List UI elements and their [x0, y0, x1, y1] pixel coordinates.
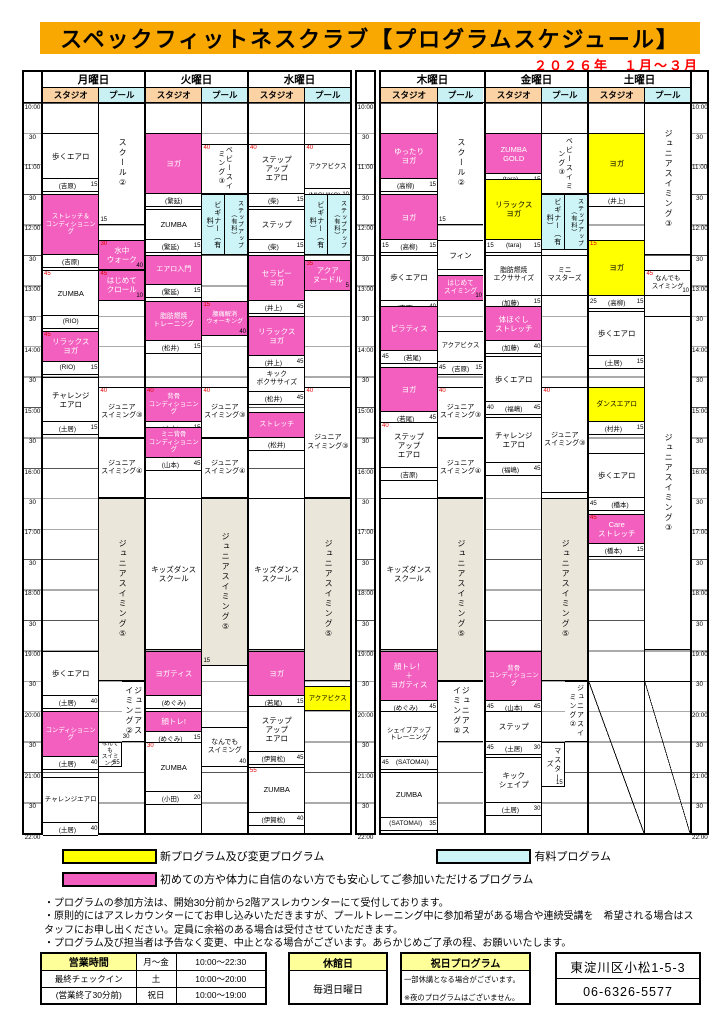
instructor-name: (吉原)	[446, 363, 476, 373]
schedule-event: キッズダンス スクール	[146, 498, 201, 650]
legend-row-1: 新プログラム及び変更プログラム 有料プログラム	[62, 848, 611, 864]
hours-time-cell: 10:00～19:00	[176, 987, 266, 1004]
event-title: ジュニアスイミング⑤	[456, 539, 465, 640]
event-main: ジュニアスイミング②	[565, 682, 587, 741]
schedule-event	[645, 681, 690, 833]
time-label: 15:00	[24, 407, 41, 415]
time-label: 30	[357, 559, 374, 567]
event-main: ZUMBA	[146, 210, 201, 238]
event-capacity: 15	[475, 365, 482, 371]
event-title: ジュニア スイミング③	[307, 434, 348, 451]
event-title: ジュニアスイミング③	[663, 129, 672, 230]
event-title: はじめて スイミング	[444, 280, 477, 296]
schedule-event: チャレンジエアロ(土居)40	[43, 777, 98, 836]
instructor-name: (吉原)	[44, 180, 91, 190]
event-title: コンディショニング	[43, 727, 98, 742]
schedule-event: 顔トレ!(めぐみ)15	[146, 711, 201, 744]
event-title: Care ストレッチ	[598, 520, 636, 538]
time-label: 14:00	[357, 346, 374, 354]
event-main: ヨガ	[249, 652, 304, 696]
schedule-event: ジュニアスイミング③	[645, 103, 690, 255]
event-title: ヨガティス	[155, 669, 192, 678]
event-capacity: 15	[91, 365, 98, 371]
time-label: 30	[24, 742, 41, 750]
instructor-name: (伊賀松)	[250, 814, 297, 824]
event-title: 歩くエアロ	[495, 375, 533, 384]
schedule-event: ヨガ(繁延)	[146, 133, 201, 207]
time-label: 21:00	[24, 772, 41, 780]
event-main: アクアビクス	[305, 687, 350, 710]
schedule-event: ステップ アップ エアロ(伊賀松)45	[249, 706, 304, 765]
event-capacity: 45	[297, 755, 304, 761]
event-title: チャレンジ エアロ	[52, 391, 89, 409]
time-label: 30	[357, 377, 374, 385]
event-main: ミニ背骨 コンディショニング	[146, 428, 201, 456]
schedule-event: 歩くエアロ(土居)15	[589, 311, 644, 370]
event-title: ジュニアスイミング②	[568, 682, 583, 741]
event-instructor-row: (松井)15	[146, 340, 201, 353]
event-main: ジュニア スイミング④	[99, 439, 144, 498]
event-start-marker: 40	[203, 145, 210, 152]
event-main: ヨガ	[381, 195, 437, 239]
event-capacity: 45	[297, 359, 304, 365]
event-main: ゆったり ヨガ	[381, 134, 437, 178]
event-capacity: 40	[91, 760, 98, 766]
event-capacity: 45	[487, 704, 494, 710]
instructor-name: (加藤)	[487, 342, 534, 352]
event-main: ヨガ	[146, 134, 201, 193]
instructor-name: (tara)	[494, 242, 534, 249]
event-title: アクアビクス	[442, 342, 480, 350]
area-header-pool: プール	[305, 88, 350, 102]
day-column: 火曜日スタジオプールヨガ(繁延)ZUMBA(繁延)15エアロ入門(繁延)15脂肪…	[144, 72, 247, 833]
event-title: 脂肪燃焼 トレーニング	[153, 313, 194, 329]
schedule-event: ステップ45(土居)30	[486, 711, 541, 754]
event-title: ステップアップ（有料）	[229, 195, 242, 254]
event-title: ジュニアスイミング⑤	[117, 539, 126, 640]
schedule-event: ピラティス45(若尾)	[381, 306, 437, 365]
studio-lane: ヨガ(井上)ヨガ1525(高柳)15歩くエアロ(土居)15ダンスエアロ(村井)1…	[589, 103, 645, 833]
schedule-event: フィン	[438, 240, 483, 270]
event-title: ステップアップ（有料）	[332, 195, 345, 254]
event-start-marker: 40	[306, 145, 313, 152]
event-main: シェイプアップ トレーニング	[381, 712, 437, 756]
event-title: アクアビクス	[309, 695, 347, 703]
event-title: ジュニア スイミング④	[204, 460, 245, 477]
event-title: はじめて クロール	[107, 276, 137, 294]
event-title: 歩くエアロ	[390, 273, 428, 282]
event-main: スクール②15	[99, 104, 144, 224]
event-title: キッズダンス スクール	[254, 565, 299, 583]
phone-number: 06-6326-5577	[557, 979, 699, 1005]
area-header-row: スタジオプール	[43, 88, 144, 103]
event-instructor-row: (繁延)15	[146, 284, 201, 297]
event-title: ジュニア スイミング③	[544, 432, 585, 449]
area-header-row: スタジオプール	[249, 88, 350, 103]
time-label: 11:00	[357, 164, 374, 172]
schedule-event: ジュニアスイミング⑤	[99, 498, 144, 681]
event-main: 腰痛解消 ウォーキング1540	[202, 302, 247, 335]
time-label: 30	[24, 620, 41, 628]
event-title: ジュニア スイミング④	[440, 460, 481, 477]
event-title: なんでも スイミング	[208, 739, 242, 755]
studio-lane: ゆったり ヨガ(高柳)15ヨガ15(高柳)15歩くエアロ(吉原)40ピラティス4…	[381, 103, 438, 833]
schedule-event: ジュニア スイミング③40	[438, 387, 483, 438]
schedule-event: ジュニアスイミング⑤15	[202, 498, 247, 665]
schedule-event: リラックス ヨガ(井上)45	[249, 316, 304, 370]
time-label: 19:00	[692, 651, 707, 659]
event-title: ベビースイミング③	[217, 145, 232, 194]
schedule-event: ジュニア スイミング③40	[305, 387, 350, 499]
event-main: ヨガティス	[146, 652, 201, 696]
time-label: 30	[692, 742, 707, 750]
event-instructor-row: 45(若尾)	[381, 350, 437, 363]
event-instructor-row: 25(高柳)15	[589, 295, 644, 308]
event-capacity: 45	[487, 745, 494, 751]
event-main: ZUMBA	[381, 773, 437, 817]
event-instructor-row: (山本)45	[146, 457, 201, 470]
event-start-marker: 55	[250, 768, 257, 775]
instructor-name: (高柳)	[382, 180, 429, 190]
time-label: 30	[692, 438, 707, 446]
instructor-name: (土居)	[44, 758, 91, 768]
time-label: 30	[692, 620, 707, 628]
event-corner-number: 40	[239, 329, 246, 336]
event-main: 背骨 コンディショニング	[486, 652, 541, 701]
instructor-name: (福嶋)	[494, 403, 534, 413]
event-capacity: 15	[297, 699, 304, 705]
instructor-name: (土居)	[494, 743, 534, 753]
event-capacity: 15	[297, 197, 304, 203]
event-main: ストレッチ	[249, 413, 304, 436]
event-instructor-row: (松井)	[249, 437, 304, 450]
event-start-marker: 45	[44, 271, 51, 278]
event-main: リラックス ヨガ45	[43, 332, 98, 360]
event-title: キック ボクササイズ	[256, 371, 297, 387]
instructor-name: (RIO)	[44, 364, 91, 371]
time-label: 30	[692, 498, 707, 506]
time-column: 10:003011:003012:003013:003014:003015:00…	[357, 72, 374, 833]
time-label: 30	[692, 316, 707, 324]
event-instructor-row: (めぐみ)	[146, 695, 201, 708]
event-title: エアロ入門	[156, 266, 191, 274]
area-header-studio: スタジオ	[589, 88, 645, 102]
event-main: ジュニアスイミング⑤	[305, 499, 350, 680]
event-title: リラックス ヨガ	[495, 200, 532, 218]
note-line: ・原則的にはアスレカウンターにてお申し込みいただきますが、プールトレーニング中に…	[44, 910, 700, 937]
time-label: 30	[357, 803, 374, 811]
event-main: ジュニア スイミング③40	[438, 388, 483, 437]
time-label: 30	[24, 194, 41, 202]
event-capacity: 20	[194, 795, 201, 801]
event-main: ベビースイミング③40	[202, 145, 247, 194]
area-header-pool: プール	[645, 88, 690, 102]
event-instructor-row: (伊賀松)45	[249, 751, 304, 764]
event-capacity: 40	[297, 816, 304, 822]
event-main: キック ボクササイズ	[249, 368, 304, 391]
schedule-event: 顔トレ！ ＋ ヨガティス(めぐみ)45	[381, 651, 437, 715]
event-title: アクアビクス	[309, 163, 347, 171]
instructor-name: (繁延)	[147, 195, 200, 205]
notes: ・プログラムの参加方法は、開始30分前から2階アスレカウンターにて受付しておりま…	[44, 897, 700, 950]
schedule-event: 背骨 コンディショニング45(山本)45	[486, 651, 541, 715]
event-capacity: 15	[382, 243, 389, 249]
day-column: 木曜日スタジオプールゆったり ヨガ(高柳)15ヨガ15(高柳)15歩くエアロ(吉…	[381, 72, 484, 833]
event-title: ミニ背骨 コンディショニング	[146, 431, 201, 454]
hours-day-cell: 月～金	[136, 953, 176, 970]
schedule-event: ビギナー（有料）	[305, 194, 327, 255]
event-instructor-row: (松井)45	[249, 391, 304, 404]
event-main: 顔トレ！ ＋ ヨガティス	[381, 652, 437, 701]
event-main: ジュニアスイミング⑤	[438, 499, 483, 680]
schedule-event: ビギナー（有料）	[542, 194, 564, 250]
event-capacity: 15	[429, 182, 436, 188]
schedule-event: 体ほぐし ストレッチ(加藤)40	[486, 306, 541, 354]
time-label: 30	[24, 255, 41, 263]
event-main: ダンスエアロ	[589, 388, 644, 421]
schedule-event: ジュニアスイミング②30	[122, 681, 144, 742]
event-instructor-row: (柴)15	[249, 193, 304, 206]
event-title: ビギナー（有料）	[308, 195, 323, 254]
time-label: 19:00	[357, 651, 374, 659]
schedule-event: アクアビクス45(吉原)15	[438, 331, 483, 374]
event-main: 顔トレ!	[146, 712, 201, 730]
schedule-event: ZUMBA(繁延)15	[146, 209, 201, 252]
studio-lane: ステップ アップ エアロ40(柴)15ステップ(柴)15セラピー ヨガ(井上)4…	[249, 103, 305, 833]
event-title: セラピー ヨガ	[262, 269, 292, 287]
event-start-marker: 45	[646, 271, 653, 278]
event-instructor-row: (福嶋)45	[486, 462, 541, 475]
event-title: ジュニアスイミング⑤	[560, 539, 569, 640]
event-instructor-row: (井上)	[589, 193, 644, 206]
day-column: 金曜日スタジオプールZUMBA GOLD(tara)15リラックス ヨガ15(t…	[484, 72, 587, 833]
day-body: ゆったり ヨガ(高柳)15ヨガ15(高柳)15歩くエアロ(吉原)40ピラティス4…	[381, 103, 484, 833]
event-instructor-row: (小田)20	[146, 791, 201, 804]
event-corner-number: 15	[100, 217, 107, 224]
instructor-name: (柴)	[250, 241, 297, 251]
time-label: 30	[357, 438, 374, 446]
area-header-studio: スタジオ	[249, 88, 305, 102]
event-main: アクア ヌードル355	[305, 261, 350, 289]
event-capacity: 45	[382, 760, 389, 766]
event-main: スクール②15	[438, 104, 483, 224]
event-main: ジュニアスイミング②	[438, 682, 483, 741]
event-main: 歩くエアロ	[43, 134, 98, 178]
event-start-marker: 35	[306, 261, 313, 268]
event-corner-number: 55	[113, 760, 120, 767]
hours-label-cell: 最終チェックイン	[41, 970, 136, 987]
schedule-event: 腰痛解消 ウォーキング1540	[202, 301, 247, 336]
event-main: キッズダンス スクール	[381, 499, 437, 649]
event-capacity: 15	[534, 299, 541, 305]
schedule-event: ジュニア スイミング④	[438, 438, 483, 499]
schedule-event: ヨガ1525(高柳)15	[589, 240, 644, 309]
instructor-name: (小田)	[147, 793, 194, 803]
legend-swatch-new-program	[62, 849, 157, 864]
event-capacity: 30	[534, 806, 541, 812]
time-label: 10:00	[692, 103, 707, 111]
event-main: フィン	[438, 241, 483, 269]
event-main: ジュニア スイミング④	[438, 439, 483, 498]
event-capacity: 25	[590, 299, 597, 305]
time-label: 13:00	[24, 286, 41, 294]
event-main: なんでも スイミング4510	[645, 271, 690, 294]
day-column: 月曜日スタジオプール歩くエアロ(吉原)15ストレッチ＆ コンディショニング(吉原…	[41, 72, 144, 833]
time-column-spacer	[24, 72, 41, 103]
event-title: ジュニア スイミング③	[440, 404, 481, 421]
studio-lane: ヨガ(繁延)ZUMBA(繁延)15エアロ入門(繁延)15脂肪燃焼 トレーニング(…	[146, 103, 202, 833]
event-main: ジュニア スイミング③40	[542, 388, 587, 492]
schedule-event: はじめて スイミング10	[438, 275, 483, 300]
schedule-event: ステップアップ（有料）	[328, 194, 350, 255]
time-label: 30	[692, 133, 707, 141]
event-title: 顔トレ!	[161, 717, 186, 726]
time-label: 13:00	[357, 286, 374, 294]
legend-swatch-beginner-program	[62, 872, 157, 887]
event-main: ZUMBA55	[249, 768, 304, 812]
event-title: チャレンジエアロ	[45, 796, 97, 804]
schedule-event: シェイプアップ トレーニング45(SATOMAI)	[381, 711, 437, 770]
schedule-event: ステップアップ（有料）	[565, 194, 587, 250]
day-body: ヨガ(井上)ヨガ1525(高柳)15歩くエアロ(土居)15ダンスエアロ(村井)1…	[589, 103, 690, 833]
event-main: 脂肪燃焼 エクササイズ	[486, 256, 541, 295]
event-main: ジュニア スイミング③40	[99, 388, 144, 437]
event-capacity: 15	[637, 299, 644, 305]
schedule-event: キック ボクササイズ(松井)45	[249, 367, 304, 405]
time-label: 22:00	[692, 833, 707, 841]
hours-day-cell: 土	[136, 970, 176, 987]
event-main: ZUMBA30	[146, 743, 201, 792]
schedule-event: エアロ入門(繁延)15	[146, 255, 201, 298]
hours-time-cell: 10:00～22:30	[176, 953, 266, 970]
instructor-name: (SATOMAI)	[389, 759, 436, 766]
event-main: 歩くエアロ	[43, 652, 98, 696]
event-start-marker: 40	[250, 145, 257, 152]
event-main: Care ストレッチ45	[589, 515, 644, 543]
event-title: ジュニア スイミング③	[204, 404, 245, 421]
event-corner-number: 15	[439, 217, 446, 224]
time-label: 30	[692, 377, 707, 385]
day-body: 歩くエアロ(吉原)15ストレッチ＆ コンディショニング(吉原)ZUMBA45(R…	[43, 103, 144, 833]
event-main: アクアビクス40	[305, 145, 350, 189]
instructor-name: (橋本)	[597, 499, 644, 509]
event-capacity: 15	[194, 735, 201, 741]
event-main: なんでも スイミング40	[202, 728, 247, 767]
event-instructor-row: (橋本)15	[589, 543, 644, 556]
event-instructor-row: (高柳)15	[381, 178, 437, 191]
instructor-name: (若尾)	[389, 352, 436, 362]
event-instructor-row: (土居)15	[43, 421, 98, 434]
event-main: ジュニアスイミング⑤	[542, 499, 587, 680]
area-header-row: スタジオプール	[381, 88, 484, 103]
day-header: 土曜日	[589, 72, 690, 88]
event-title: ヨガ	[609, 263, 624, 272]
event-start-marker: 40	[147, 388, 154, 395]
pool-lane: ベビースイミング③ビギナー（有料）ステップアップ（有料）ミニ マスターズジュニア…	[542, 103, 587, 833]
event-capacity: 45	[429, 704, 436, 710]
event-main: ジュニア スイミング③40	[202, 388, 247, 437]
schedule-event: ステップ アップ エアロ40(吉原)	[381, 422, 437, 481]
area-header-studio: スタジオ	[486, 88, 542, 102]
event-title: ジュニアスイミング⑤	[323, 539, 332, 640]
event-capacity: 45	[429, 415, 436, 421]
time-label: 10:00	[24, 103, 41, 111]
instructor-name: (柴)	[250, 195, 297, 205]
event-start-marker: 15	[203, 302, 210, 309]
studio-lane: ZUMBA GOLD(tara)15リラックス ヨガ15(tara)15脂肪燃焼…	[486, 103, 542, 833]
event-main: ビギナー（有料）	[202, 195, 223, 254]
time-column-body: 10:003011:003012:003013:003014:003015:00…	[692, 103, 707, 833]
instructor-name: (土居)	[44, 423, 91, 433]
instructor-name: (繁延)	[147, 286, 194, 296]
time-label: 30	[357, 681, 374, 689]
time-label: 17:00	[357, 529, 374, 537]
schedule-event: ジュニア スイミング④	[202, 438, 247, 499]
time-label: 30	[692, 803, 707, 811]
schedule-event: スクール②15	[438, 103, 483, 225]
event-instructor-row: (加藤)40	[486, 340, 541, 353]
schedule-event: ベビースイミング③40	[202, 144, 247, 195]
time-label: 19:00	[24, 651, 41, 659]
event-instructor-row: (井上)45	[249, 300, 304, 313]
holiday-program-header: 祝日プログラム	[402, 954, 529, 971]
event-main: ストレッチ＆ コンディショニング	[43, 195, 98, 254]
event-capacity: 40	[91, 699, 98, 705]
event-capacity: 45	[534, 704, 541, 710]
instructor-name: (土居)	[590, 357, 637, 367]
event-capacity: 40	[534, 344, 541, 350]
event-main: ステップ アップ エアロ40	[381, 423, 437, 467]
area-header-pool: プール	[542, 88, 587, 102]
event-capacity: 15	[194, 288, 201, 294]
time-label: 12:00	[24, 225, 41, 233]
event-title: ステップ アップ エアロ	[262, 716, 292, 743]
event-title: ヨガ	[402, 213, 417, 222]
event-capacity: 15	[429, 243, 436, 249]
schedule-event: はじめて クロール4510	[99, 270, 144, 300]
event-capacity: 45	[534, 405, 541, 411]
event-title: シェイプアップ トレーニング	[387, 727, 431, 742]
event-main: エアロ入門	[146, 256, 201, 284]
day-column: 土曜日スタジオプールヨガ(井上)ヨガ1525(高柳)15歩くエアロ(土居)15ダ…	[587, 72, 690, 833]
day-header: 木曜日	[381, 72, 484, 88]
schedule-event: ヨガ(井上)	[589, 133, 644, 207]
event-corner-number: 5	[346, 283, 349, 290]
time-label: 30	[24, 559, 41, 567]
event-title: ストレッチ	[259, 421, 294, 429]
schedule-event: ジュニア スイミング③40	[542, 387, 587, 493]
day-header: 火曜日	[146, 72, 247, 88]
schedule-event: なんでも スイミング4510	[645, 270, 690, 295]
event-start-marker: 40	[439, 388, 446, 395]
business-hours-table: 営業時間 月～金 10:00～22:30 最終チェックイン 土 10:00～20…	[40, 952, 267, 1005]
schedule-event: ミニ マスターズ	[542, 255, 587, 296]
timetable: 10:003011:003012:003013:003014:003015:00…	[22, 70, 709, 835]
schedule-event	[589, 681, 644, 833]
schedule-event: リラックス ヨガ45(RIO)15	[43, 331, 98, 374]
time-label: 22:00	[357, 833, 374, 841]
event-title: 腰痛解消 ウォーキング	[206, 311, 243, 326]
event-title: ZUMBA	[396, 790, 422, 799]
event-main: 体ほぐし ストレッチ	[486, 307, 541, 340]
schedule-event: ベビースイミング③	[542, 133, 587, 194]
time-column: 10:003011:003012:003013:003014:003015:00…	[24, 72, 41, 833]
event-capacity: 30	[534, 745, 541, 751]
event-main: 歩くエアロ	[381, 256, 437, 300]
event-start-marker: 30	[100, 241, 107, 248]
event-main: ジュニア スイミング④	[202, 439, 247, 498]
time-label: 30	[24, 681, 41, 689]
